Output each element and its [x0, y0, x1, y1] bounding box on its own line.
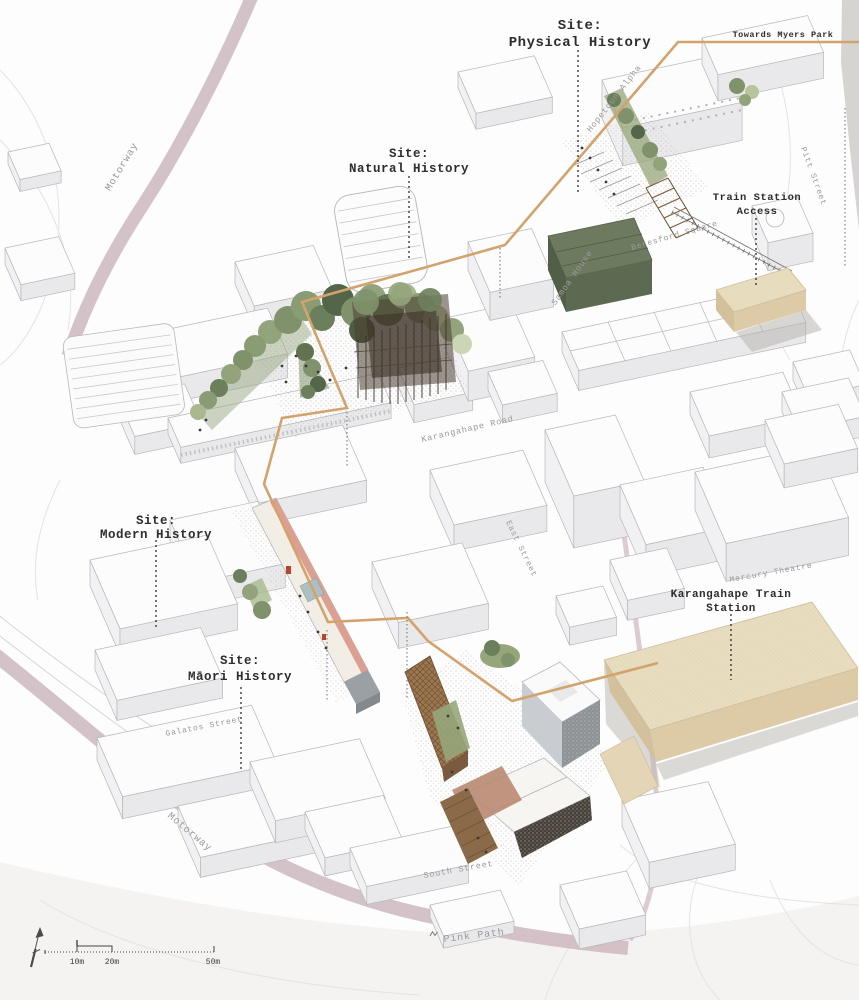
label-site-maori-2: Māori History	[188, 670, 292, 684]
scale-20m: 20m	[105, 958, 120, 967]
louvered-building	[62, 322, 186, 429]
myers-park-edge	[841, 0, 859, 230]
label-site-maori-1: Site:	[220, 654, 260, 668]
label-train-station-1: Karangahape Train	[671, 589, 792, 601]
label-site-modern-2: Modern History	[100, 528, 212, 542]
street-pitt-street: Pitt Street	[798, 146, 828, 207]
street-motorway-upper: Motorway	[104, 141, 141, 193]
masterplan-canvas: Motorway Motorway Hopetoun Alpha Samoa H…	[0, 0, 859, 1000]
label-site-physical-2: Physical History	[509, 35, 652, 51]
label-train-access-2: Access	[737, 206, 778, 218]
street-beresford-square: Beresford Square	[630, 220, 719, 253]
label-site-physical-1: Site:	[558, 18, 603, 34]
label-towards-myers-park: Towards Myers Park	[733, 30, 834, 40]
scale-10m: 10m	[70, 958, 85, 967]
label-train-station-2: Station	[706, 603, 756, 615]
round-tower	[332, 184, 430, 295]
label-site-natural-1: Site:	[389, 147, 429, 161]
scale-50m: 50m	[206, 958, 221, 967]
masterplan-drawing: Motorway Motorway Hopetoun Alpha Samoa H…	[0, 0, 859, 1000]
label-site-modern-1: Site:	[136, 514, 176, 528]
motorway-band-upper	[68, 0, 253, 356]
label-train-access-1: Train Station	[713, 192, 801, 204]
label-site-natural-2: Natural History	[349, 162, 469, 176]
